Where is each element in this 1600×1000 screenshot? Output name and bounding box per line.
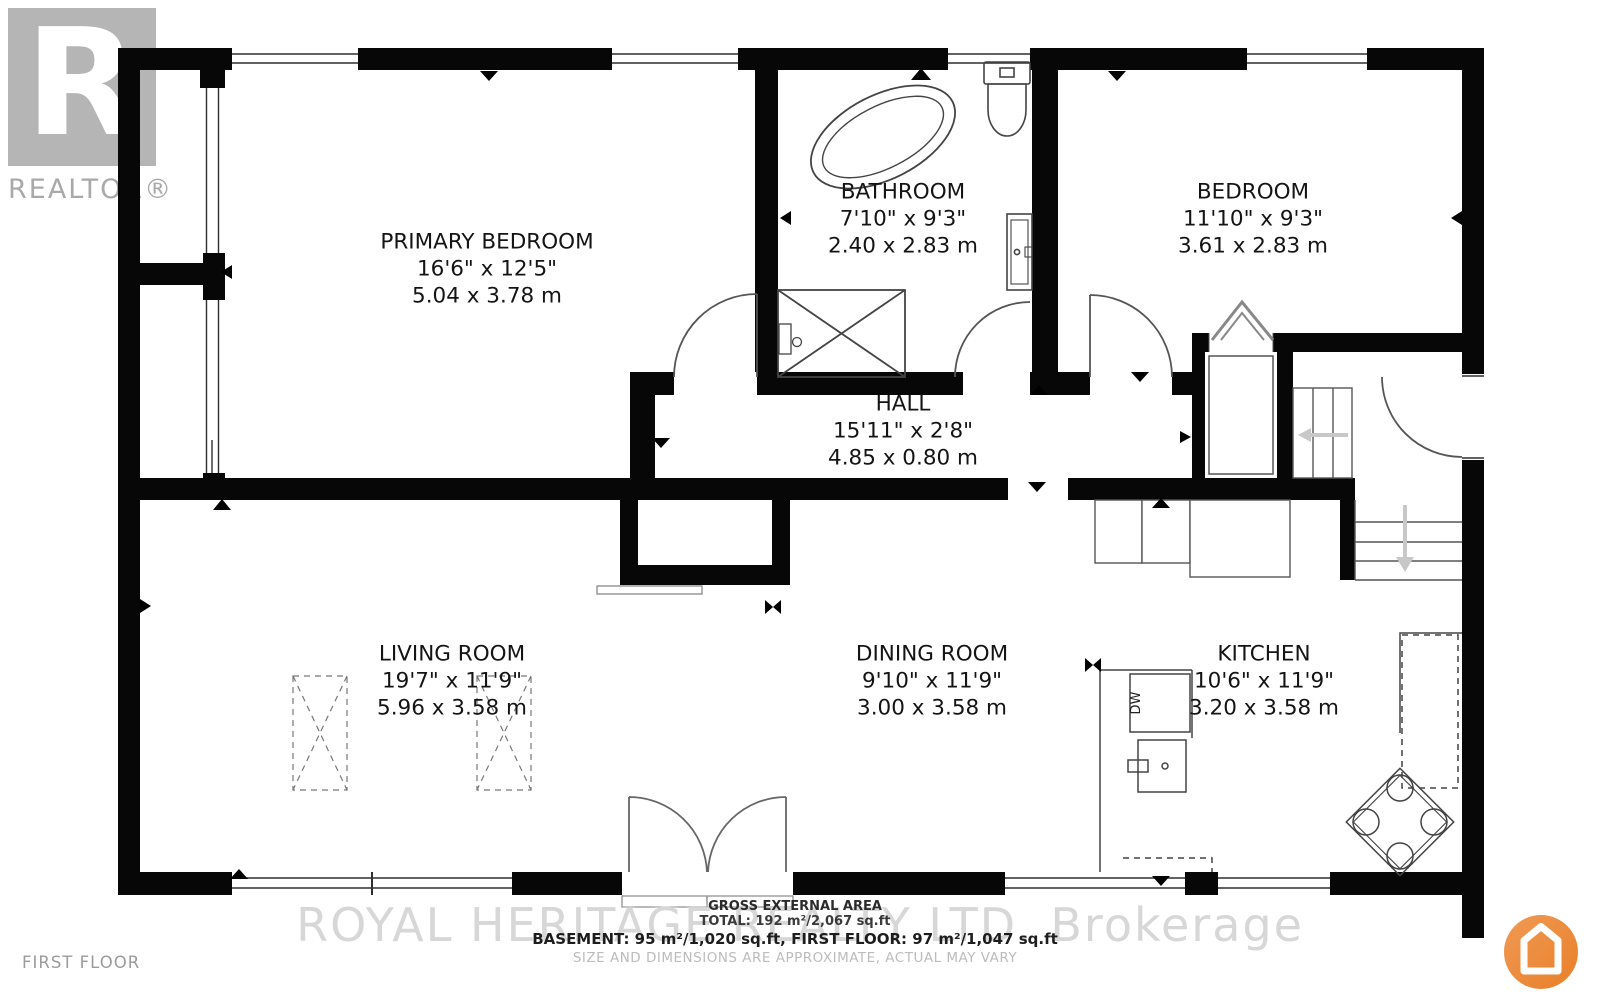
primary-bedroom-door bbox=[674, 294, 757, 377]
room-label-bathroom: BATHROOM 7'10" x 9'3" 2.40 x 2.83 m bbox=[828, 179, 978, 260]
dishwasher: DW bbox=[1129, 674, 1190, 732]
room-name: BATHROOM bbox=[828, 179, 978, 206]
room-name: DINING ROOM bbox=[856, 641, 1008, 668]
room-name: LIVING ROOM bbox=[377, 641, 527, 668]
room-dim-metric: 3.20 x 3.58 m bbox=[1189, 695, 1339, 722]
french-doors bbox=[629, 797, 786, 872]
stairs-down-arrow-icon bbox=[1396, 557, 1414, 572]
room-dim-metric: 5.96 x 3.58 m bbox=[377, 695, 527, 722]
room-name: PRIMARY BEDROOM bbox=[380, 229, 593, 256]
closets bbox=[1095, 500, 1290, 577]
opening-bowtie-icon bbox=[765, 600, 781, 614]
shower bbox=[778, 290, 905, 377]
room-label-hall: HALL 15'11" x 2'8" 4.85 x 0.80 m bbox=[828, 391, 978, 472]
counter-dashed-right bbox=[1402, 635, 1458, 788]
hearth bbox=[597, 586, 702, 594]
toilet bbox=[984, 62, 1030, 136]
room-dim-imperial: 7'10" x 9'3" bbox=[828, 206, 978, 233]
room-label-kitchen: KITCHEN 10'6" x 11'9" 3.20 x 3.58 m bbox=[1189, 641, 1339, 722]
room-name: BEDROOM bbox=[1178, 179, 1328, 206]
room-dim-metric: 3.61 x 2.83 m bbox=[1178, 233, 1328, 260]
room-dim-metric: 4.85 x 0.80 m bbox=[828, 445, 978, 472]
room-dim-imperial: 10'6" x 11'9" bbox=[1189, 668, 1339, 695]
room-dim-imperial: 9'10" x 11'9" bbox=[856, 668, 1008, 695]
fireplace bbox=[597, 500, 790, 594]
room-dim-imperial: 15'11" x 2'8" bbox=[828, 418, 978, 445]
kitchen-sink bbox=[1128, 740, 1186, 792]
room-dim-metric: 2.40 x 2.83 m bbox=[828, 233, 978, 260]
dishwasher-label: DW bbox=[1129, 691, 1144, 714]
bedroom-door bbox=[1090, 295, 1172, 377]
area-summary: GROSS EXTERNAL AREA TOTAL: 192 m²/2,067 … bbox=[0, 899, 1590, 966]
room-dim-imperial: 11'10" x 9'3" bbox=[1178, 206, 1328, 233]
stairs-up bbox=[1293, 388, 1352, 478]
gross-area-title: GROSS EXTERNAL AREA bbox=[0, 899, 1590, 914]
room-label-living-room: LIVING ROOM 19'7" x 11'9" 5.96 x 3.58 m bbox=[377, 641, 527, 722]
floorplan-page: R REALTOR® bbox=[0, 0, 1600, 1000]
room-label-bedroom: BEDROOM 11'10" x 9'3" 3.61 x 2.83 m bbox=[1178, 179, 1328, 260]
room-dim-imperial: 19'7" x 11'9" bbox=[377, 668, 527, 695]
counter-dashed bbox=[1123, 858, 1212, 872]
room-label-primary-bedroom: PRIMARY BEDROOM 16'6" x 12'5" 5.04 x 3.7… bbox=[380, 229, 593, 310]
house-logo-icon bbox=[1502, 913, 1580, 991]
bathroom-door bbox=[955, 302, 1030, 377]
floor-areas: BASEMENT: 95 m²/1,020 sq.ft, FIRST FLOOR… bbox=[0, 930, 1590, 948]
stove bbox=[1346, 768, 1453, 875]
room-name: KITCHEN bbox=[1189, 641, 1339, 668]
room-name: HALL bbox=[828, 391, 978, 418]
room-dim-metric: 5.04 x 3.78 m bbox=[380, 283, 593, 310]
disclaimer: SIZE AND DIMENSIONS ARE APPROXIMATE, ACT… bbox=[0, 950, 1590, 966]
room-dim-metric: 3.00 x 3.58 m bbox=[856, 695, 1008, 722]
stairs-up-arrow-icon bbox=[1298, 428, 1311, 442]
room-dim-imperial: 16'6" x 12'5" bbox=[380, 256, 593, 283]
floorplan-drawing: DW bbox=[0, 0, 1600, 1000]
entry-door bbox=[1382, 377, 1462, 457]
stairs-down bbox=[1355, 500, 1462, 580]
total-area: TOTAL: 192 m²/2,067 sq.ft bbox=[0, 914, 1590, 929]
room-label-dining-room: DINING ROOM 9'10" x 11'9" 3.00 x 3.58 m bbox=[856, 641, 1008, 722]
floor-label: FIRST FLOOR bbox=[22, 953, 140, 972]
chimney bbox=[1209, 302, 1273, 474]
bathroom-sink bbox=[1007, 214, 1032, 290]
opening-bowtie-icon bbox=[1085, 658, 1101, 672]
